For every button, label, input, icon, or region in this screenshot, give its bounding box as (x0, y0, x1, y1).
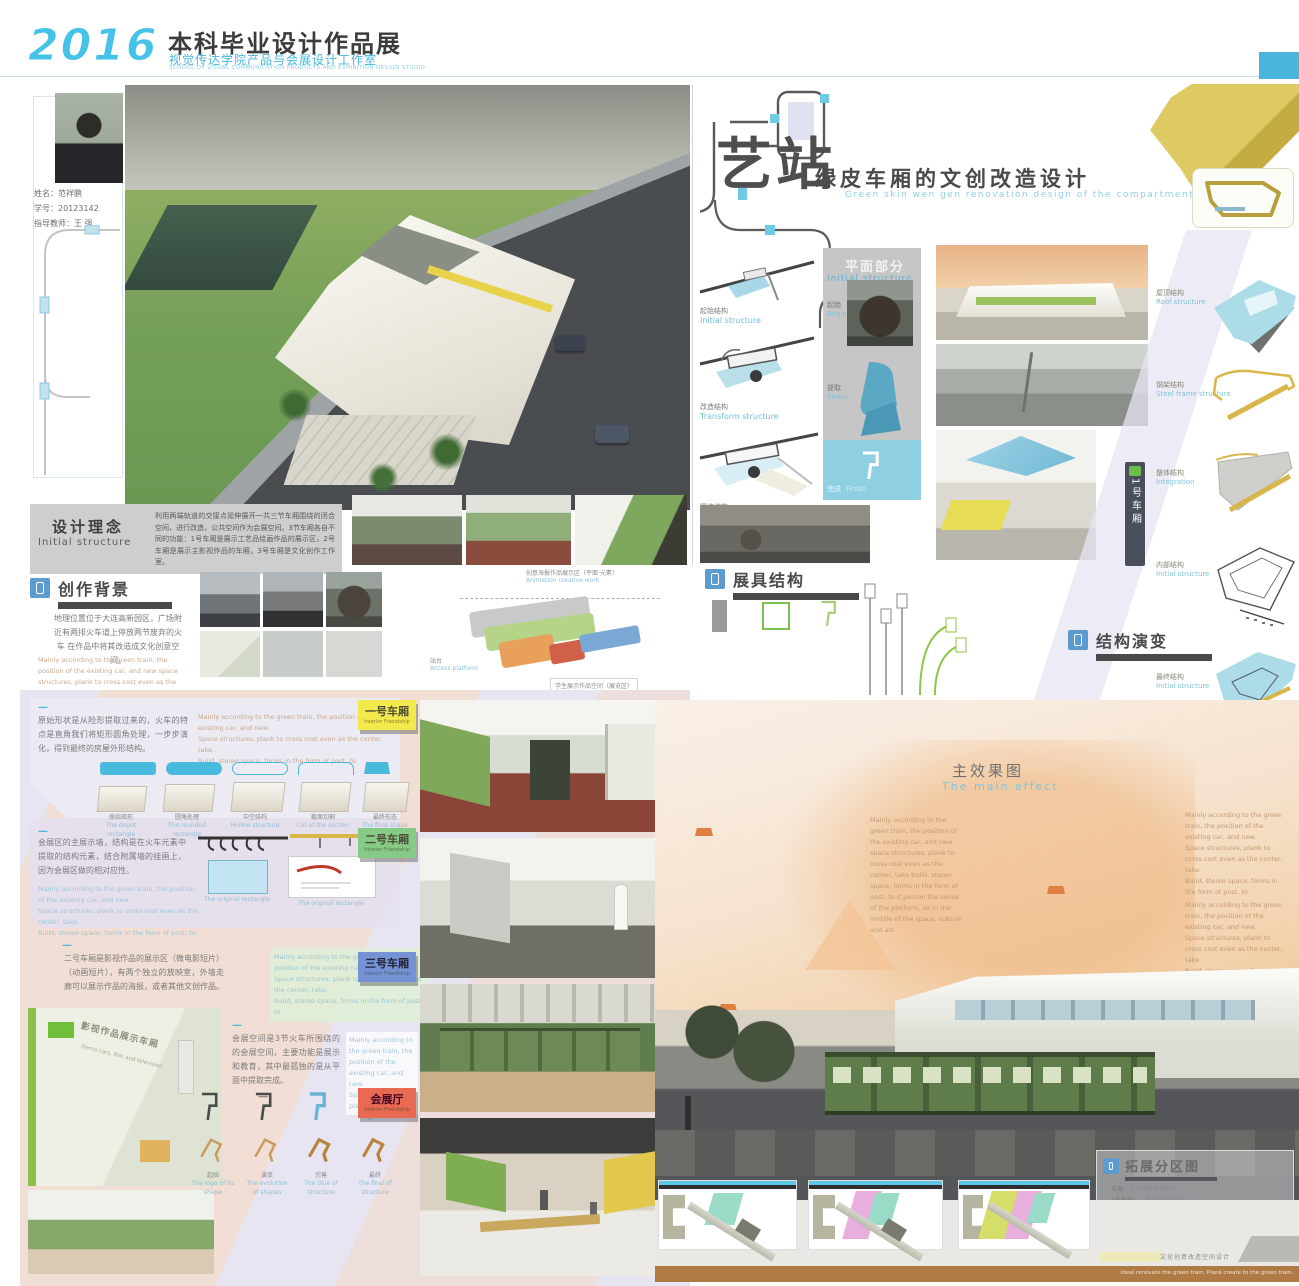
s1-cap-1-cn: 圆角处理 (175, 814, 199, 821)
sketch-initial-label: 起始结构 Initial structure (700, 306, 761, 325)
hall-figure-1 (540, 1190, 548, 1210)
exhibit-shape-bar (712, 600, 727, 632)
car2-interior-render (420, 838, 688, 978)
exp-r0-a: 车厢 (1111, 1186, 1123, 1193)
student-name-row: 姓名：范祥鹏 (34, 186, 99, 201)
student-name-label: 姓名： (34, 189, 58, 198)
s1-cap-3-cn: 截面切割 (311, 814, 335, 821)
s1-shape-3 (232, 762, 288, 775)
tag-car1-label: 一号车厢 (365, 705, 409, 718)
project-subtitle-en: Green skin wen gen renovation design of … (845, 190, 1194, 200)
concept-title: 设计理念 (52, 516, 124, 537)
s2-body1: 会展区的主展示墙，结构是在火车元素中提取的结构元素，结合附属墙的挂画上，因为会展… (38, 836, 186, 878)
s2-poster-card (288, 856, 376, 898)
exhibit-section-icon (705, 569, 725, 589)
car3-train-side (440, 1028, 640, 1071)
zd2-gray-l (813, 1195, 835, 1239)
interior-yellow-wall (941, 500, 1012, 530)
sketch-transform (698, 330, 816, 400)
main-effect-title: 主效果图 (952, 760, 1024, 781)
tree-trunk (685, 1096, 691, 1130)
zone-diagram-3 (958, 1180, 1090, 1250)
car1-doorway (530, 740, 570, 800)
car1-tag-icon (1129, 466, 1141, 476)
site-outline-map (1192, 168, 1294, 228)
car3-render (420, 984, 688, 1112)
right-item-2-label: 整体结构 Integration (1156, 468, 1195, 486)
left-panel: — 原始形状是从险形提取过来的，火车的特点是直角我们将矩形圆角处理，一步步演化，… (20, 690, 690, 1286)
tag-car2-sub: Interior Friendship (358, 847, 416, 854)
right-item-3-label: 内部结构 Initial structure (1156, 560, 1209, 578)
glyph-cap-0: 起始The logo of its shape (190, 1172, 236, 1197)
plan-shape-extract (857, 360, 907, 438)
tag-hall-label: 会展厅 (371, 1093, 404, 1106)
site-map (200, 631, 260, 677)
right-item-3-cn: 内部结构 (1156, 561, 1184, 569)
site-photo-3 (263, 631, 323, 677)
exhibit-section-header: 展具结构 (705, 567, 859, 600)
student-name: 范祥鹏 (58, 189, 82, 198)
footer-bar: Ideal renovate the green train, Plank cr… (655, 1266, 1299, 1282)
s1-dash: — (38, 702, 48, 713)
glyph-6 (250, 1130, 280, 1164)
student-id: 20123142 (58, 204, 99, 213)
footer-yellow-strip (1100, 1252, 1162, 1262)
tag-car2: 二号车厢 Interior Friendship (358, 828, 416, 858)
glyph-cap-3-cn: 最终 (369, 1172, 381, 1179)
right-item-0-cn: 屋顶结构 (1156, 289, 1184, 297)
s1-cap-4-cn: 最终形态 (373, 814, 397, 821)
render-car-2 (595, 425, 629, 443)
zd1-gray-l (663, 1195, 685, 1239)
right-item-1-cn: 钢架结构 (1156, 381, 1184, 389)
right-item-3-graphic (1210, 540, 1299, 632)
glyph-2 (252, 1090, 278, 1124)
tag-car3-sub: Interior Friendship (358, 971, 416, 978)
car1-interior-render (420, 700, 688, 832)
trees-silhouette (673, 980, 803, 1110)
right-item-4-cn: 最终结构 (1156, 673, 1184, 681)
s1-box-3 (230, 782, 285, 812)
s1-box-5 (362, 782, 409, 812)
zd3-dark-bar (959, 1185, 1089, 1189)
tag-car2-label: 二号车厢 (365, 833, 409, 846)
glyph-5 (196, 1130, 226, 1164)
glyph-cap-3-en: The final of structure (352, 1180, 398, 1197)
s1-body: 原始形状是从险形提取过来的，火车的特点是直角我们将矩形圆角处理，一步步演化，得到… (38, 714, 188, 756)
plan-step-0: 起始 Begin (827, 300, 847, 318)
plan-panel: 平面部分 Initial structure 起始 Begin 提取 Shape… (823, 248, 921, 500)
glyph-7 (304, 1130, 334, 1164)
student-photo (55, 93, 123, 183)
diagram-label-platform-cn: 站台 (430, 658, 442, 665)
train-photo-1 (352, 495, 462, 565)
tag-car3: 三号车厢 Interior Friendship (358, 952, 416, 982)
main-aerial-render (125, 85, 690, 510)
s1-shape-2 (166, 762, 222, 775)
evolution-title: 结构演变 (1096, 628, 1168, 652)
building-render-sunset (936, 245, 1148, 340)
right-item-2-graphic (1208, 444, 1299, 526)
exhibit-shape-square (762, 602, 790, 630)
tag-hall: 会展厅 Interior Friendship (358, 1088, 416, 1118)
s2-caption1: The original rectangle (202, 896, 272, 904)
student-id-row: 学号：20123142 (34, 201, 99, 216)
background-section-header: 创作背景 (30, 576, 172, 609)
zd1-dark-bar (659, 1185, 796, 1189)
expansion-title: 拓展分区图 (1125, 1156, 1200, 1175)
render-tree-2 (425, 430, 469, 474)
exhibit-wireframes (860, 560, 970, 700)
corner-accent-block (1259, 52, 1299, 79)
effect-marker-2 (1047, 886, 1065, 894)
s1-shape-1 (100, 762, 156, 775)
glyph-cap-1: 演变The evolution of shapes (244, 1172, 290, 1197)
footer-caption: 文化创意改造空间设计 (1160, 1252, 1230, 1261)
glyph-3 (306, 1090, 332, 1124)
s2-caption2: The original rectangle (288, 900, 374, 908)
road-line-graphic (30, 225, 125, 485)
footer-caption-en: Ideal renovate the green train, Plank cr… (1121, 1270, 1293, 1276)
car3-ceiling (420, 984, 688, 1022)
evolution-underbar (1096, 654, 1212, 661)
right-item-2-cn: 整体结构 (1156, 469, 1184, 477)
render-tree-1 (275, 385, 315, 425)
interior-skylight-render (936, 430, 1096, 560)
header-divider (0, 76, 1299, 77)
evolution-section-header: 结构演变 (1068, 628, 1212, 661)
glyph-1 (198, 1090, 224, 1124)
s2-blue-rect (208, 860, 268, 894)
hall-bench (480, 1214, 600, 1232)
effect-note-2: Mainly according to the green train, the… (1185, 810, 1285, 898)
s1-box-4 (298, 782, 351, 812)
plan-step-0-cn: 起始 (827, 301, 841, 309)
right-item-4-en: Initial structure (1156, 682, 1209, 690)
s1-cap-2-cn: 中空结构 (243, 814, 267, 821)
sketch-initial-cn: 起始结构 (700, 307, 728, 315)
background-section-icon (30, 578, 50, 598)
glyph-cap-0-en: The logo of its shape (190, 1180, 236, 1197)
glyph-cap-2-en: The blue of structure (298, 1180, 344, 1197)
s2-body1-en: Mainly according to the green train, the… (38, 884, 198, 939)
skylight (966, 436, 1076, 476)
s2-hanger-diagram (198, 830, 288, 856)
right-item-0-en: Roof structure (1156, 298, 1206, 306)
sketch-transform-cn: 改造结构 (700, 403, 728, 411)
diagram-label-anim-en: Animation creative work (526, 577, 618, 584)
sketch-transform-en: Transform structure (700, 412, 779, 421)
right-item-4-label: 最终结构 Initial structure (1156, 672, 1209, 690)
evolution-section-icon (1068, 630, 1088, 650)
right-item-2-en: Integration (1156, 478, 1195, 486)
glyph-cap-0-cn: 起始 (207, 1172, 219, 1179)
sunset-green-band (976, 297, 1096, 305)
student-id-label: 学号： (34, 204, 58, 213)
effect-marker-1 (695, 828, 713, 836)
right-item-3-en: Initial structure (1156, 570, 1209, 578)
exp-r0-b: 文化创意改造空间 (1129, 1186, 1177, 1193)
concept-body: 利用两端轨道的交接点延伸展开一共三节车厢围绕的闭合空间，进行改造，公共空间作为会… (155, 511, 335, 569)
zone-diagram-2 (808, 1180, 943, 1250)
demo-car-logo (48, 1022, 74, 1038)
s2b-dash: — (62, 940, 72, 951)
background-underbar (58, 602, 172, 609)
project-subtitle: 绿皮车厢的文创改造设计 (815, 163, 1090, 193)
plan-step-2: 完成 Finish (823, 484, 921, 494)
site-photo-2 (263, 572, 323, 627)
demo-car-render-2 (28, 1190, 214, 1274)
plan-title: 平面部分 (845, 256, 905, 275)
header-year: 2016 (28, 20, 158, 71)
hall-render (420, 1118, 688, 1276)
hall-green-wall (446, 1152, 506, 1213)
header-subtitle-en: SCHOOL OF VISUAL COMMUNICATION PRODUCTS … (169, 65, 425, 71)
main-effect-title-en: The main effect (942, 780, 1059, 793)
site-photo-1 (200, 572, 260, 627)
concept-title-en: Initial structure (38, 537, 131, 548)
plan-step-1-cn: 提取 (827, 384, 841, 392)
background-title: 创作背景 (58, 576, 130, 600)
exhibit-title: 展具结构 (733, 567, 805, 591)
sketch-initial (698, 252, 816, 312)
tag-car1: 一号车厢 Interior Friendship (358, 700, 416, 730)
glyph-cap-2-cn: 完善 (315, 1172, 327, 1179)
plan-finish-block: 完成 Finish (823, 440, 921, 500)
render-tree-3 (365, 460, 401, 496)
plan-step-2-cn: 完成 (827, 485, 841, 493)
zd2-dark-bar (809, 1185, 942, 1189)
expansion-underbar (1125, 1177, 1217, 1181)
train-photo-3 (575, 495, 687, 565)
tag-car3-label: 三号车厢 (365, 957, 409, 970)
s1-shape-5 (364, 762, 390, 774)
plan-diagram: 创意海报作品展示区（平面·元素） Animation creative work… (430, 568, 690, 696)
s1-shape-4 (298, 762, 354, 775)
glyph-cap-3: 最终The final of structure (352, 1172, 398, 1197)
exhibit-context-photo (700, 505, 870, 563)
car1-vertical-tag: 1号车厢 (1125, 462, 1145, 566)
column-divider (692, 85, 693, 565)
car2-figure (614, 884, 628, 930)
glyph-cap-1-cn: 演变 (261, 1172, 273, 1179)
site-outline-path (1193, 169, 1293, 227)
s2-body2: 二号车厢是影视作品的展示区（微电影短片）（动画短片），有两个独立的放映室，外墙走… (64, 952, 224, 994)
car1-green-wall (420, 719, 490, 806)
diagram-label-platform: 站台 Access platform (430, 656, 478, 672)
glyph-cap-1-en: The evolution of shapes (244, 1180, 290, 1197)
train-photo-2 (466, 495, 571, 565)
exhibit-shape-glyph7 (818, 598, 842, 630)
sketch-transform-label: 改造结构 Transform structure (700, 402, 779, 421)
render-car-1 (555, 335, 585, 351)
s1-cap-0-cn: 原始矩形 (109, 814, 133, 821)
concept-box: 设计理念 Initial structure 利用两端轨道的交接点延伸展开一共三… (30, 504, 342, 574)
expansion-icon (1103, 1158, 1119, 1174)
effect-note-1: Mainly according to the green train, the… (870, 815, 965, 937)
plan-step-0-en: Begin (827, 310, 847, 318)
diagram-label-anim: 创意海报作品展示区（平面·元素） Animation creative work (526, 568, 618, 584)
plan-step-1-en: Shape (827, 393, 849, 401)
tag-hall-sub: Interior Friendship (358, 1107, 416, 1114)
plan-finish-glyph (859, 448, 885, 484)
glyph-8 (358, 1130, 388, 1164)
s2-poster-swoosh (289, 857, 375, 897)
tag-car1-sub: Interior Friendship (358, 719, 416, 726)
site-photo-train (326, 572, 382, 627)
diagram-label-platform-en: Access platform (430, 665, 478, 672)
car1-tag-text: 1号车厢 (1128, 478, 1143, 526)
s2-block: — 会展区的主展示墙，结构是在火车元素中提取的结构元素，结合附属墙的挂画上，因为… (30, 822, 400, 932)
poster: 2016 本科毕业设计作品展 视觉传达学院产品与会展设计工作室 SCHOOL O… (0, 0, 1299, 1286)
plan-step-2-en: Finish (846, 485, 866, 493)
plan-photo-begin (847, 280, 913, 346)
right-item-1-graphic (1208, 358, 1299, 430)
right-item-0-label: 屋顶结构 Roof structure (1156, 288, 1206, 306)
zone-diagram-1 (658, 1180, 797, 1250)
diagram-label-anim-cn: 创意海报作品展示区（平面·元素） (526, 570, 618, 577)
site-photo-4 (326, 631, 382, 677)
s1-box-1 (97, 786, 148, 812)
expansion-row: 车厢 文化创意改造空间 (1111, 1185, 1293, 1196)
glyph-cap-2: 完善The blue of structure (298, 1172, 344, 1197)
sketch-final (698, 428, 820, 500)
car2-wall-panel (450, 853, 510, 944)
s4-body: 会展空间是3节火车所围绕的的会展空间，主要功能是展示和教育，其中最孤独的是从平面… (232, 1032, 340, 1088)
s4-dash: — (232, 1020, 242, 1031)
train-windows (833, 1067, 1147, 1083)
platform-render (936, 344, 1148, 426)
s1-box-2 (163, 784, 216, 812)
plan-step-1: 提取 Shape (827, 383, 849, 401)
platform-pole (1022, 352, 1033, 412)
green-train (825, 1052, 1155, 1115)
sketch-initial-en: Initial structure (700, 316, 761, 325)
station-glазing (955, 1000, 1255, 1020)
right-item-0-graphic (1204, 278, 1299, 358)
demo-car-crate (140, 1140, 170, 1162)
